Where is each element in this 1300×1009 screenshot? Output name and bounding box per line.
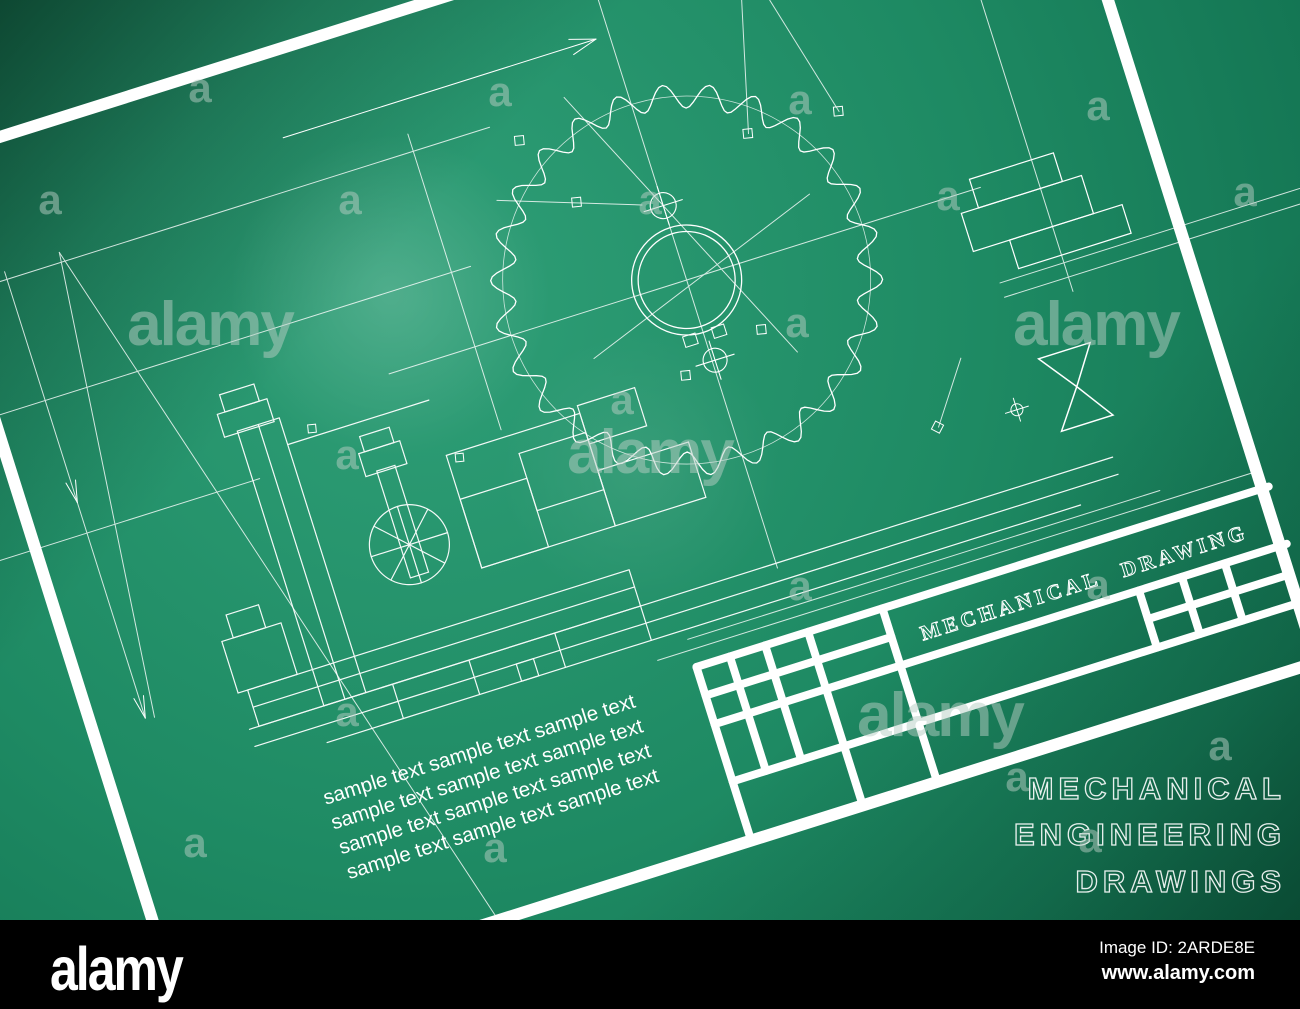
watermark-a: a <box>335 691 358 733</box>
watermark-a: a <box>788 565 811 607</box>
watermark-alamy: alamy <box>567 422 733 484</box>
watermark-a: a <box>335 434 358 476</box>
alamy-logo: alamy <box>50 934 182 1005</box>
watermark-a: a <box>638 179 661 221</box>
watermark-a: a <box>610 379 633 421</box>
image-id-text: Image ID: 2ARDE8E <box>1099 938 1255 958</box>
watermark-alamy: alamy <box>127 294 293 356</box>
watermark-a: a <box>38 179 61 221</box>
watermark-a: a <box>338 179 361 221</box>
watermark-alamy: alamy <box>857 685 1023 747</box>
watermark-a: a <box>1086 564 1109 606</box>
watermark-a: a <box>785 302 808 344</box>
website-text: www.alamy.com <box>1099 962 1255 985</box>
watermark-a: a <box>1233 171 1256 213</box>
watermark-a: a <box>788 79 811 121</box>
watermark-a: a <box>1005 756 1028 798</box>
watermark-a: a <box>936 175 959 217</box>
watermark-a: a <box>488 71 511 113</box>
watermark-a: a <box>188 67 211 109</box>
watermark-layer: aaaaaaaaaaaaaaaaaaaaalamyalamyalamyalamy <box>0 0 1300 1009</box>
alamy-footer-bar: alamy Image ID: 2ARDE8E www.alamy.com <box>0 920 1300 1009</box>
watermark-a: a <box>1086 85 1109 127</box>
footer-bar-info: Image ID: 2ARDE8E www.alamy.com <box>1099 938 1255 985</box>
watermark-a: a <box>183 822 206 864</box>
stock-image-canvas: MECHANICAL DRAWING sample text sample te… <box>0 0 1300 1009</box>
watermark-alamy: alamy <box>1013 294 1179 356</box>
watermark-a: a <box>1208 725 1231 767</box>
watermark-a: a <box>483 827 506 869</box>
watermark-a: a <box>1078 817 1101 859</box>
